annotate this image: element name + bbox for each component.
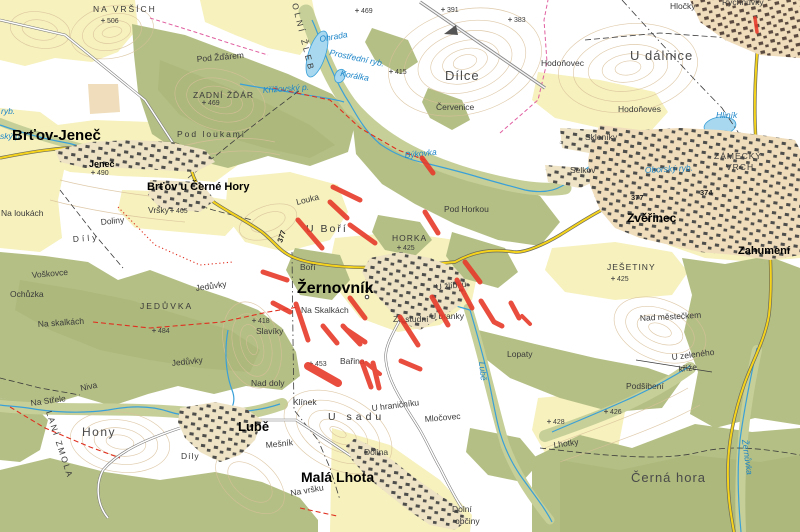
place-label: Klínek bbox=[293, 397, 317, 407]
road-number: 374 bbox=[700, 188, 713, 197]
town-label-zverinec: Zvěřinec bbox=[627, 211, 677, 225]
town-label-jenec: Jeneč bbox=[89, 159, 115, 169]
place-label: ZADNÍ ŽĎÁR bbox=[193, 90, 254, 100]
place-label: Dílce bbox=[445, 68, 480, 83]
place-label: Černá hora bbox=[631, 470, 706, 485]
elevation-label: 426 bbox=[610, 409, 622, 416]
elevation-label: 418 bbox=[258, 318, 270, 325]
place-label: Na Skalkách bbox=[301, 305, 349, 315]
elevation-label: 506 bbox=[107, 18, 119, 25]
place-label: Na loukách bbox=[1, 208, 44, 218]
elevation-label: 425 bbox=[617, 276, 629, 283]
place-label: VRCH bbox=[726, 162, 754, 172]
place-label: Díly bbox=[72, 232, 99, 244]
place-label: Pod loukami bbox=[177, 129, 246, 139]
place-label: JEŠETINY bbox=[607, 262, 656, 272]
place-label: Dolní bbox=[452, 504, 472, 514]
road-number: 377 bbox=[631, 193, 644, 202]
water-label: Lubě bbox=[477, 361, 489, 381]
water-label: ryb. bbox=[1, 106, 15, 116]
elevation-label: 490 bbox=[97, 170, 109, 177]
place-label: Hony bbox=[82, 425, 116, 439]
place-label: ZÁMECKÝ bbox=[714, 151, 762, 161]
town-label-brtov-u-cerne-hory: Brťov u Černé Hory bbox=[147, 180, 250, 193]
place-label: občiny bbox=[455, 516, 480, 526]
elevation-label: 383 bbox=[514, 17, 526, 24]
place-label: Selkov bbox=[570, 165, 596, 175]
place-label: Dolina bbox=[364, 447, 388, 457]
place-label: HORKA bbox=[392, 233, 427, 243]
topographic-map-viewport: Ohrada Prostřední ryb. Korálka Křížovský… bbox=[0, 0, 800, 532]
place-label: Rychnůvky bbox=[722, 0, 764, 7]
elevation-label: 465 bbox=[176, 208, 188, 215]
place-label: U sadu bbox=[328, 411, 385, 423]
water-label: Hliník bbox=[716, 110, 738, 120]
place-label: Hodoňoves bbox=[618, 104, 661, 114]
town-label-zahumeni: Zahumení bbox=[738, 245, 791, 257]
place-label: Skleníky bbox=[585, 132, 618, 142]
town-label-zernovnik: Žernovník bbox=[297, 278, 374, 297]
town-label-mala-lhota: Malá Lhota bbox=[301, 469, 374, 485]
place-label: Podšibení bbox=[626, 381, 664, 391]
place-label: Díly bbox=[181, 451, 200, 461]
place-label: Hločky bbox=[670, 1, 696, 11]
place-label: Slavíky bbox=[256, 326, 284, 336]
place-label: Ochůzka bbox=[10, 289, 44, 299]
place-label: Pod Horkou bbox=[444, 204, 489, 214]
place-label: Nad doly bbox=[251, 378, 285, 388]
place-label: Červenice bbox=[436, 102, 475, 112]
elevation-label: 469 bbox=[361, 8, 373, 15]
elevation-label: 484 bbox=[158, 328, 170, 335]
place-label: Hodoňovec bbox=[541, 58, 585, 68]
town-label-lube: Lubě bbox=[238, 419, 269, 434]
topographic-map: Ohrada Prostřední ryb. Korálka Křížovský… bbox=[0, 0, 800, 532]
elevation-label: 391 bbox=[447, 7, 459, 14]
place-label: NA VRŠÍCH bbox=[93, 4, 157, 14]
place-label: Vršky bbox=[148, 205, 170, 215]
place-label: Boří bbox=[300, 262, 316, 272]
elevation-label: 428 bbox=[553, 419, 565, 426]
town-label-brtov-jenec: Brťov-Jeneč bbox=[12, 127, 101, 144]
elevation-label: 425 bbox=[403, 245, 415, 252]
elevation-label: 469 bbox=[208, 100, 220, 107]
place-label: U dálnice bbox=[630, 48, 693, 63]
place-label: JEDŮVKA bbox=[140, 300, 193, 311]
elevation-label: 415 bbox=[395, 69, 407, 76]
place-label: Lopaty bbox=[507, 349, 533, 359]
